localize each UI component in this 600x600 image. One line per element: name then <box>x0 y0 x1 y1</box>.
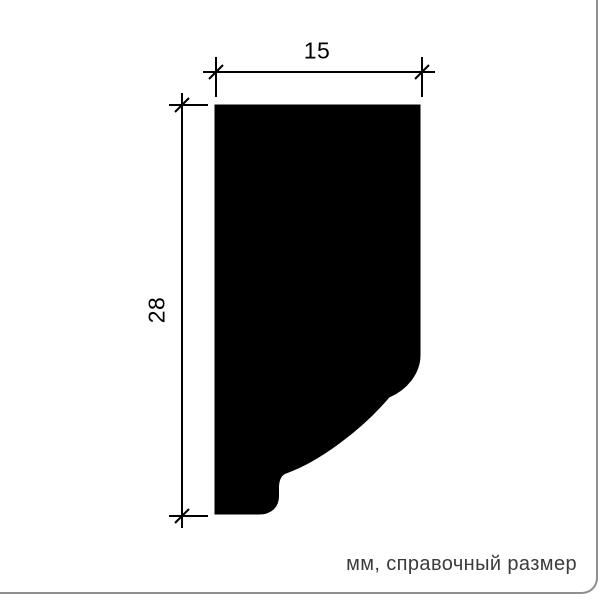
profile-drawing <box>0 0 600 600</box>
height-dimension-label: 28 <box>144 297 171 324</box>
width-dimension-label: 15 <box>304 38 331 65</box>
units-note: мм, справочный размер <box>346 553 577 576</box>
drawing-canvas: 15 28 мм, справочный размер <box>0 0 600 600</box>
profile-shape <box>215 105 420 514</box>
height-dimension <box>169 93 208 528</box>
